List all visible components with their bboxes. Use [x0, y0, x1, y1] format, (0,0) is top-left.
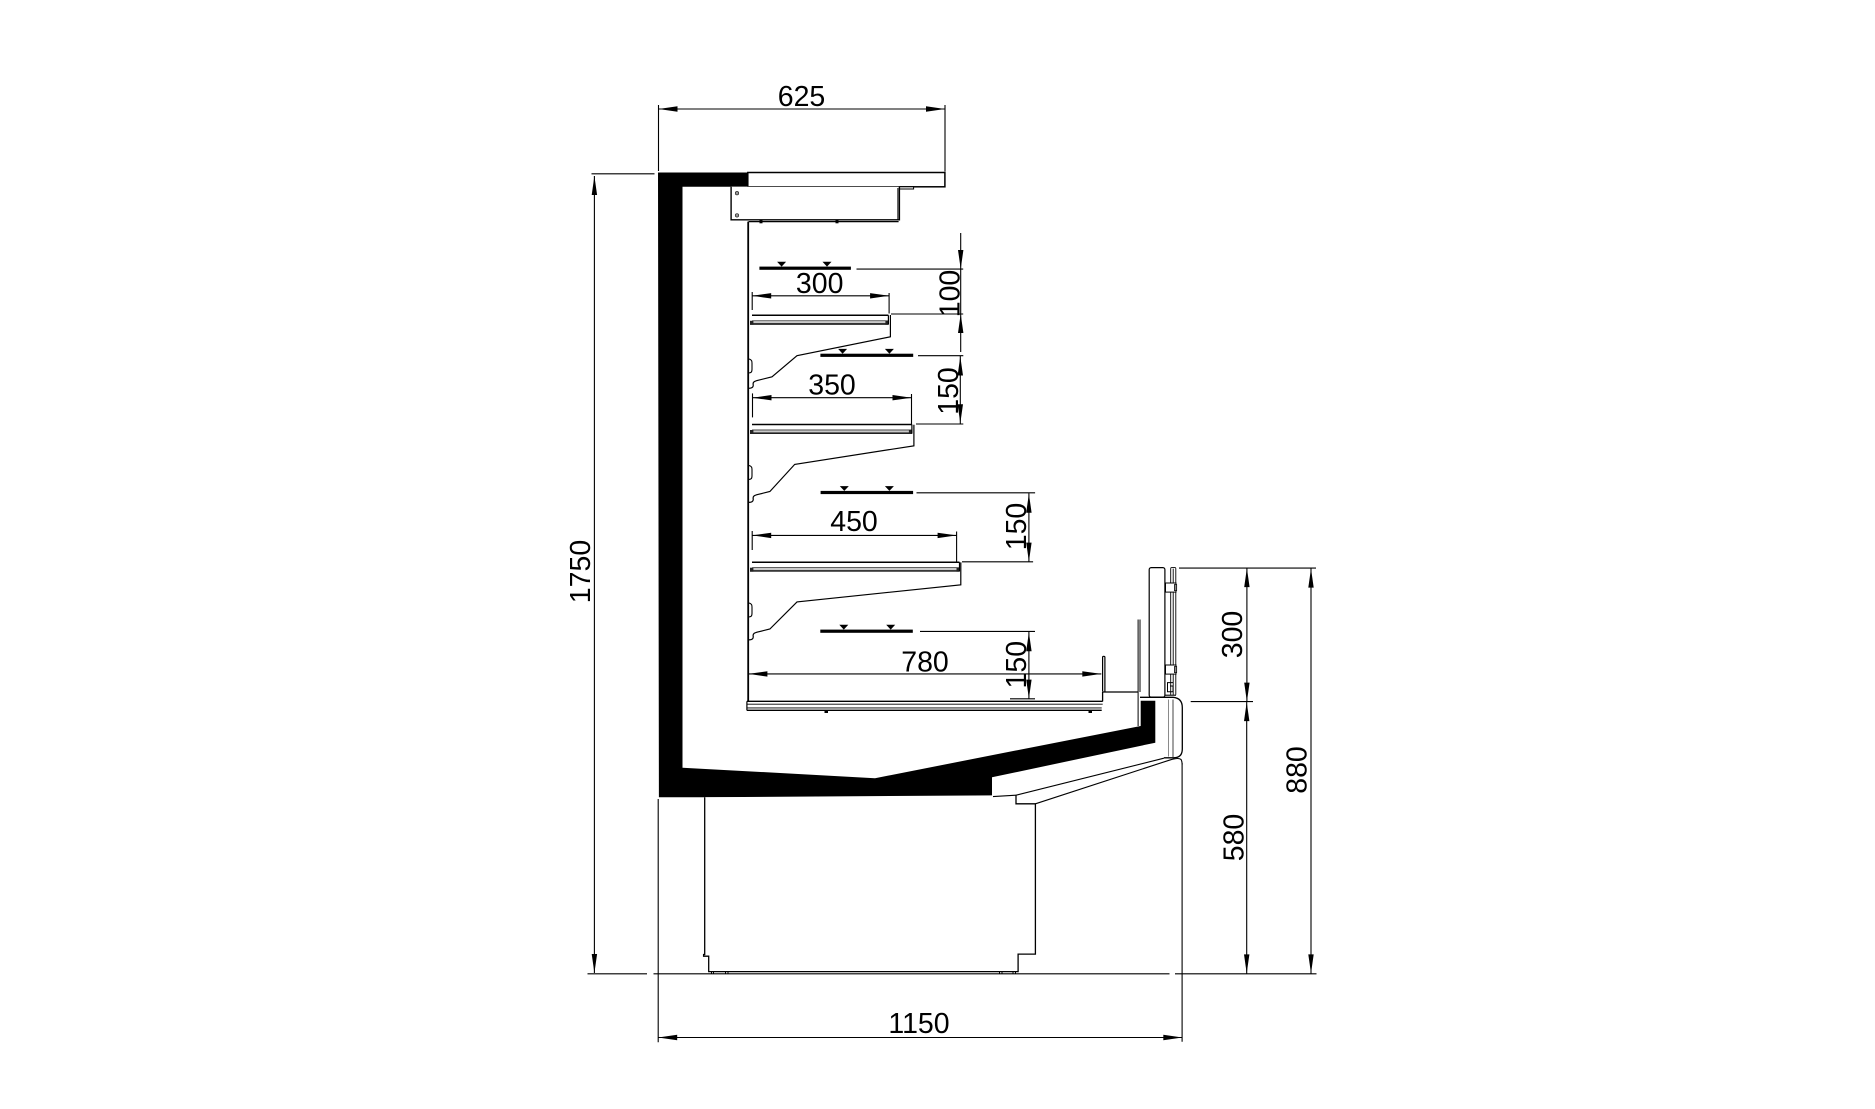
svg-text:150: 150 — [933, 367, 965, 415]
svg-text:580: 580 — [1219, 814, 1251, 862]
svg-text:780: 780 — [901, 646, 949, 678]
svg-text:1150: 1150 — [888, 1008, 949, 1040]
svg-text:150: 150 — [1001, 641, 1033, 689]
svg-text:880: 880 — [1282, 746, 1314, 794]
svg-text:1750: 1750 — [565, 540, 597, 603]
svg-text:300: 300 — [1217, 611, 1249, 659]
svg-text:100: 100 — [935, 270, 967, 318]
svg-text:150: 150 — [1001, 503, 1033, 551]
svg-text:300: 300 — [796, 268, 844, 300]
svg-text:625: 625 — [778, 81, 826, 113]
svg-text:450: 450 — [830, 506, 878, 538]
svg-text:350: 350 — [808, 369, 856, 401]
